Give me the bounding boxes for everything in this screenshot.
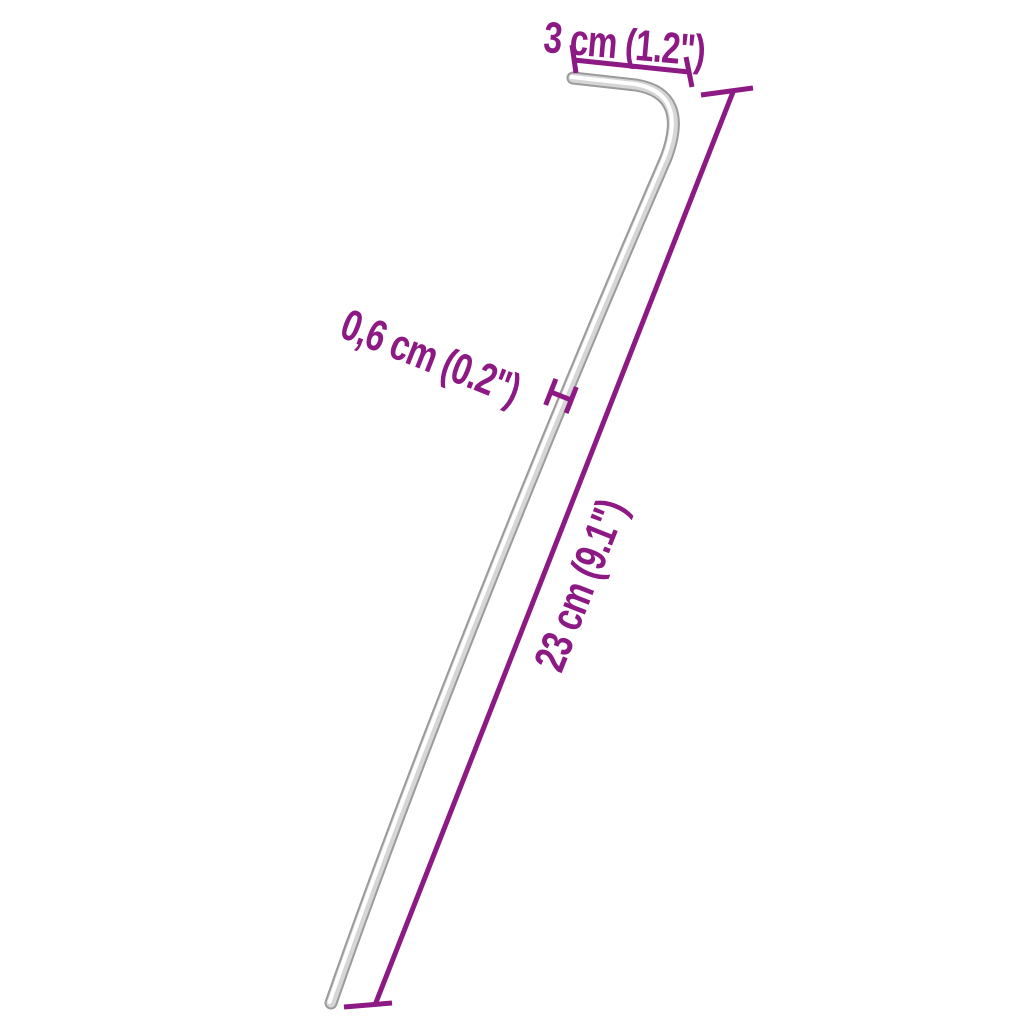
length-top-tick [701, 88, 753, 95]
length-line [375, 92, 733, 1005]
diagram-canvas [0, 0, 1024, 1024]
dimension-length [344, 88, 753, 1007]
length-bottom-tick [344, 1003, 392, 1007]
product-dimension-diagram: 3 cm (1.2") 0,6 cm (0.2") 23 cm (9.1") [0, 0, 1024, 1024]
